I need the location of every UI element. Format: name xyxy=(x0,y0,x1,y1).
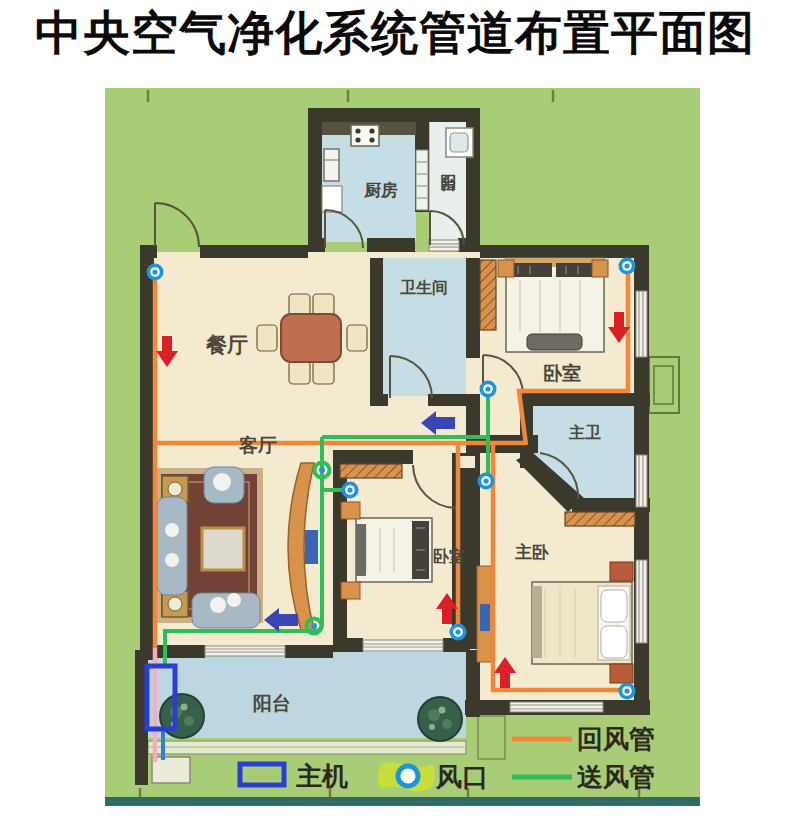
window-right-bedroom-ne xyxy=(636,291,647,357)
room-label-bathroom: 卫生间 xyxy=(400,279,448,296)
balcony-door-threshold xyxy=(205,646,285,656)
sofa-bottom xyxy=(192,593,260,628)
room-label-kitchen: 厨房 xyxy=(363,181,398,200)
room-label-master-bath: 主卫 xyxy=(568,423,601,441)
floor-plan-canvas: 厨房 阳台 卫生间 餐厅 卧室 主卫 客厅 卧室 主卧 阳台 主机 风口 回风管… xyxy=(0,0,790,816)
plant-icon xyxy=(418,697,462,741)
legend-vent-symbol xyxy=(398,766,418,786)
room-label-bedroom-mid: 卧室 xyxy=(433,547,465,565)
window-bedroom-mid-bottom xyxy=(363,640,443,651)
wardrobe-master xyxy=(565,512,635,526)
legend-supply-duct-label: 送风管 xyxy=(577,762,655,792)
stove-icon xyxy=(351,125,379,146)
floor-plan-page: 中央空气净化系统管道布置平面图 xyxy=(0,0,790,816)
vent-icon xyxy=(478,473,495,490)
room-label-dining: 餐厅 xyxy=(205,333,248,356)
room-label-bedroom-ne: 卧室 xyxy=(543,363,581,384)
wardrobe-bedroom-ne xyxy=(480,260,496,330)
dining-table xyxy=(281,314,341,362)
vent-icon xyxy=(619,258,636,275)
page-title: 中央空气净化系统管道布置平面图 xyxy=(0,2,790,65)
window-kitchen-divider xyxy=(416,150,428,210)
exterior-step xyxy=(152,757,190,783)
vent-icon xyxy=(147,264,164,281)
room-label-living: 客厅 xyxy=(238,435,277,456)
fridge-icon xyxy=(324,149,339,181)
legend-vent-label: 风口 xyxy=(435,762,488,792)
tv-master xyxy=(480,604,490,631)
wardrobe-bedroom-mid xyxy=(340,464,402,478)
coffee-table xyxy=(202,528,244,570)
vent-icon xyxy=(342,482,359,499)
legend-main-unit-label: 主机 xyxy=(296,761,348,791)
window-balcony-top xyxy=(429,240,459,251)
balcony-railing xyxy=(148,741,466,754)
room-label-master-bedroom: 主卧 xyxy=(515,542,549,562)
sofa-left xyxy=(157,497,187,595)
room-label-balcony-bottom: 阳台 xyxy=(253,693,291,714)
kitchen-cabinet xyxy=(322,186,342,212)
window-master-bottom xyxy=(510,702,603,712)
window-right-master-bedroom xyxy=(636,560,647,643)
tv-living xyxy=(305,530,318,564)
bed-bedroom-ne xyxy=(498,258,608,352)
plan-bottom-border xyxy=(105,797,700,806)
window-right-master-bath xyxy=(636,455,647,507)
vent-icon xyxy=(450,624,467,641)
vent-icon xyxy=(480,381,497,398)
vent-icon xyxy=(619,683,636,700)
legend-return-duct-label: 回风管 xyxy=(577,724,655,754)
